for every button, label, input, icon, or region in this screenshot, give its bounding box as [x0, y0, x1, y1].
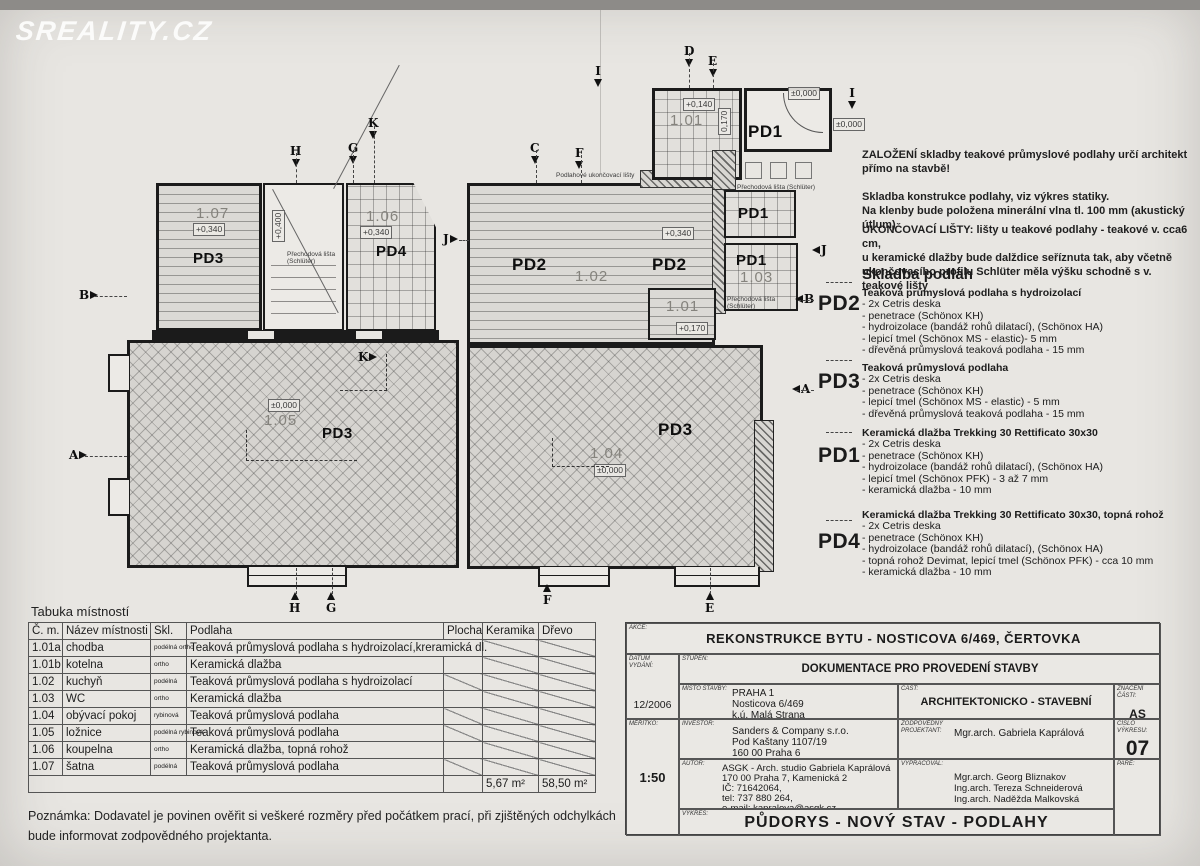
section-line [374, 126, 375, 183]
drawing-title: PŮDORYS - NOVÝ STAV - PODLAHY [680, 810, 1113, 835]
total-drevo: 58,50 m² [539, 776, 596, 793]
room-105-elevation: ±0,000 [268, 399, 300, 412]
tb-cislo-cell: ČÍSLO VÝKRESU: 07 [1114, 719, 1161, 759]
corridor-elevation: +0,400 [272, 210, 285, 242]
section-marker-f-bottom: F [543, 584, 552, 607]
pd1-layers: - 2x Cetris deska - penetrace (Schönox K… [862, 439, 1192, 497]
pd2-layers: - 2x Cetris deska - penetrace (Schönox K… [862, 299, 1192, 357]
window-bay [674, 567, 760, 587]
stair-diagonal-line [333, 65, 400, 189]
col-podlaha: Podlaha [187, 623, 444, 640]
tb-znaceni-cell: ZNAČENÍ ČÁSTI: AS [1114, 684, 1161, 719]
section-marker-b: B [79, 288, 98, 302]
section-dash-corner [552, 438, 609, 467]
paper-fold-line [600, 10, 601, 175]
room-table: Č. m. Název místnosti Skl. Podlaha Ploch… [28, 622, 596, 793]
section-marker-j: J [443, 232, 458, 246]
marker-flag-icon [531, 156, 539, 164]
floor-tile-square [770, 162, 787, 179]
total-keramika: 5,67 m² [483, 776, 539, 793]
table-row: 1.05ložnice podélná rybinová Teaková prů… [29, 725, 596, 742]
room-102-elevation: +0,340 [662, 227, 694, 240]
skladba-podlah-heading: Skladba podlah [862, 266, 973, 283]
col-keramika: Keramika [483, 623, 539, 640]
author-info: ASGK - Arch. studio Gabriela Kaprálová 1… [680, 760, 897, 809]
table-row: 1.01bkotelna ortho Keramická dlažba [29, 657, 596, 674]
scale-value: 1:50 [627, 720, 678, 835]
table-row: 1.06koupelna ortho Keramická dlažba, top… [29, 742, 596, 759]
section-dash-corner [246, 430, 357, 461]
marker-flag-icon [369, 353, 377, 361]
col-plocha: Plocha [444, 623, 483, 640]
section-line [581, 155, 582, 183]
tb-autor-cell: AUTOR: ASGK - Arch. studio Gabriela Kapr… [679, 759, 898, 809]
tb-investor-cell: INVESTOR: Sanders & Company s.r.o. Pod K… [679, 719, 898, 759]
tb-meritko-cell: MĚŘÍTKO: 1:50 [626, 719, 679, 836]
pd2-label: PD2 [818, 292, 860, 316]
door-opening [356, 331, 382, 339]
upper-elevation-zero-2: ±0,000 [833, 118, 865, 131]
transition-strip-callout: Přechodová lišta (Schlüter) [737, 184, 847, 191]
bottom-note: Poznámka: Dodavatel je povinen ověřit si… [28, 806, 616, 846]
section-marker-i2: I [848, 86, 856, 109]
upper-dim-0170: 0,170 [718, 108, 731, 135]
room-106-number: 1.06 [366, 208, 399, 225]
table-row: 1.07šatna podélná Teaková průmyslová pod… [29, 759, 596, 776]
section-marker-b2: B [795, 292, 814, 306]
table-row: 1.04obývací pokoj rybinová Teaková průmy… [29, 708, 596, 725]
section-line [296, 153, 297, 183]
room-107-number: 1.07 [196, 205, 229, 222]
marker-flag-icon [291, 592, 299, 600]
marker-flag-icon [594, 79, 602, 87]
marker-flag-icon [812, 246, 820, 254]
section-line [459, 240, 469, 241]
section-marker-j2: J [812, 243, 827, 257]
room-106-floor-code: PD4 [376, 243, 407, 260]
section-line [710, 568, 711, 594]
section-line [353, 150, 354, 183]
room-103-number: 1.03 [740, 269, 773, 286]
room-105-number: 1.05 [264, 412, 297, 429]
section-line [798, 300, 814, 301]
room-102-floor-code-left: PD2 [512, 255, 547, 275]
section-line [332, 568, 333, 594]
tb-vykres-cell: VÝKRES: PŮDORYS - NOVÝ STAV - PODLAHY [679, 809, 1114, 836]
pd3-label: PD3 [818, 370, 860, 394]
marker-flag-icon [575, 161, 583, 169]
section-marker-f: F [575, 146, 584, 169]
tb-akce-cell: AKCE: REKONSTRUKCE BYTU - NOSTICOVA 6/46… [626, 623, 1161, 654]
window-niche [108, 354, 129, 392]
drawing-sheet: SREALITY.CZ 1.07 +0,340 PD3 +0,400 1.06 … [0, 0, 1200, 866]
section-marker-a2: A [792, 382, 810, 396]
transition-strip-callout: Přechodová lišta (Schlüter) [727, 296, 787, 310]
marker-flag-icon [79, 451, 87, 459]
tb-vypracoval-cell: VYPRACOVAL: Mgr.arch. Georg Bliznakov In… [898, 759, 1114, 809]
upper-pd1-code: PD1 [748, 122, 783, 142]
room-table-header-row: Č. m. Název místnosti Skl. Podlaha Ploch… [29, 623, 596, 640]
window-niche [108, 478, 129, 516]
table-totals-row: 5,67 m² 58,50 m² [29, 776, 596, 793]
section-marker-i: I [594, 64, 602, 87]
section-marker-g-bottom: G [326, 592, 336, 615]
table-row: 1.02kuchyň podélná Teaková průmyslová po… [29, 674, 596, 691]
photo-edge-strip [0, 0, 1200, 10]
room-102-number: 1.02 [575, 268, 608, 285]
upper-101-elevation: +0,140 [683, 98, 715, 111]
col-drevo: Dřevo [539, 623, 596, 640]
section-marker-e-bottom: E [705, 592, 714, 615]
tb-misto-cell: MÍSTO STAVBY: PRAHA 1 Nosticova 6/469 k.… [679, 684, 898, 719]
title-block: AKCE: REKONSTRUKCE BYTU - NOSTICOVA 6/46… [625, 622, 1160, 835]
col-cm: Č. m. [29, 623, 63, 640]
room-table-title: Tabuka místností [31, 604, 129, 619]
pd3-symbol-line [826, 360, 852, 361]
marker-flag-icon [543, 584, 551, 592]
section-line [689, 53, 690, 88]
pd4-symbol-line [826, 520, 852, 521]
marker-flag-icon [450, 235, 458, 243]
tb-zodp-cell: ZODPOVĚDNÝ PROJEKTANT: Mgr.arch. Gabriel… [898, 719, 1114, 759]
pd4-layers: - 2x Cetris deska - penetrace (Schönox K… [862, 521, 1192, 579]
project-title: REKONSTRUKCE BYTU - NOSTICOVA 6/469, ČER… [627, 624, 1160, 653]
room-102-floor-code-right: PD2 [652, 255, 687, 275]
section-line [796, 390, 814, 391]
room-107-floor-code: PD3 [193, 250, 224, 267]
upper-101-number: 1.01 [670, 112, 703, 129]
section-marker-c: C [530, 141, 540, 164]
col-nazev: Název místnosti [63, 623, 151, 640]
pd2-symbol-line [826, 282, 852, 283]
room-106-elevation: +0,340 [360, 226, 392, 239]
tb-datum-cell: DATUM VYDÁNÍ: 12/2006 [626, 654, 679, 719]
room-107-elevation: +0,340 [193, 223, 225, 236]
marker-flag-icon [848, 101, 856, 109]
section-marker-k2: K [358, 350, 377, 364]
part-name: ARCHITEKTONICKO - STAVEBNÍ [899, 685, 1113, 718]
tb-cast-cell: ČÁST: ARCHITEKTONICKO - STAVEBNÍ [898, 684, 1114, 719]
section-line [713, 63, 714, 88]
pd1-symbol-line [826, 432, 852, 433]
pd4-label: PD4 [818, 530, 860, 554]
wall-hatch [712, 150, 736, 190]
marker-flag-icon [795, 295, 803, 303]
stair-treads [271, 263, 336, 325]
marker-flag-icon [90, 291, 98, 299]
section-marker-h-bottom: H [289, 592, 300, 615]
floor-tile-square [795, 162, 812, 179]
section-marker-a: A [69, 448, 87, 462]
sreality-watermark: SREALITY.CZ [14, 16, 214, 47]
note-zalozeni: ZALOŽENÍ skladby teakové průmyslové podl… [862, 148, 1192, 176]
pd1-label: PD1 [818, 444, 860, 468]
section-line [85, 456, 127, 457]
doc-stage: DOKUMENTACE PRO PROVEDENÍ STAVBY [680, 655, 1160, 683]
table-row: 1.03WC ortho Keramická dlažba [29, 691, 596, 708]
col-skl: Skl. [151, 623, 187, 640]
door-opening [248, 331, 274, 339]
room-101-elevation: +0,170 [676, 322, 708, 335]
section-line [536, 150, 537, 183]
room-101-number: 1.01 [666, 298, 699, 315]
table-row: 1.01achodba podélná ortho Teaková průmys… [29, 640, 596, 657]
wall-hatch [754, 420, 774, 572]
floor-tile-square [745, 162, 762, 179]
marker-flag-icon [792, 385, 800, 393]
room-104-floor-code: PD3 [658, 420, 693, 440]
section-line [296, 568, 297, 594]
upper-elevation-zero: ±0,000 [788, 87, 820, 100]
pd1-top-code: PD1 [738, 205, 769, 222]
tb-pare-cell: PARÉ: [1114, 759, 1161, 836]
room-103-floor-code: PD1 [736, 252, 767, 269]
pd3-layers: - 2x Cetris deska - penetrace (Schönox K… [862, 374, 1192, 420]
wall-band [152, 330, 439, 340]
section-line [95, 296, 127, 297]
tb-stupen-cell: STUPEŇ: DOKUMENTACE PRO PROVEDENÍ STAVBY [679, 654, 1161, 684]
tb-akce-label: AKCE: [629, 625, 647, 632]
transition-strip-callout: Přechodová lišta (Schlüter) [287, 251, 362, 265]
